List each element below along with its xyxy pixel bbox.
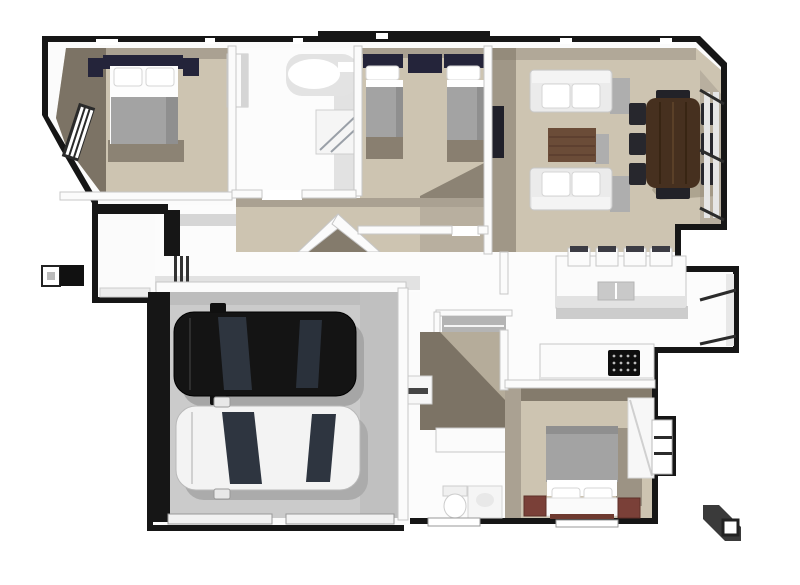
bed-shadow xyxy=(366,137,403,159)
carpet-shadow xyxy=(490,48,696,60)
duvet-shade xyxy=(477,87,484,140)
pillow xyxy=(366,66,399,80)
garage-side-wall xyxy=(148,292,170,522)
bathtub-shelf xyxy=(338,62,354,72)
car-body xyxy=(174,312,356,396)
basin xyxy=(476,493,494,507)
shared-nightstand xyxy=(408,54,442,73)
wall xyxy=(232,190,262,198)
porch-step xyxy=(100,288,150,297)
bed-base xyxy=(550,514,614,519)
window-sill xyxy=(556,520,618,527)
nightstand xyxy=(618,498,640,518)
wall xyxy=(60,192,232,200)
garage xyxy=(148,282,406,524)
rear-glass xyxy=(296,320,322,388)
dining-chair xyxy=(629,103,646,125)
pillow xyxy=(146,68,174,86)
sofa-cushion xyxy=(572,84,600,108)
wall xyxy=(484,46,492,254)
chimney-block xyxy=(703,505,741,541)
dining-chair xyxy=(629,163,646,185)
garage-door-opening xyxy=(286,514,394,524)
window-notch xyxy=(660,38,672,44)
bathroom-door-opening xyxy=(262,190,302,200)
door-threshold xyxy=(428,518,480,526)
pillow xyxy=(114,68,142,86)
sofa-cushion xyxy=(572,172,600,196)
table-shadow xyxy=(595,134,609,164)
stool-shadow xyxy=(570,246,588,252)
wall xyxy=(358,226,452,234)
wall xyxy=(354,46,362,196)
sheet-fold xyxy=(366,80,403,88)
bed-shadow xyxy=(447,140,484,162)
sofa-cushion xyxy=(542,172,570,196)
toilet-bowl xyxy=(444,494,466,518)
cabinet-side xyxy=(241,54,248,107)
double-bed-duvet xyxy=(546,426,618,482)
wall xyxy=(228,46,236,196)
bathtub-basin xyxy=(288,59,340,89)
stair-wall xyxy=(436,310,512,316)
stool-shadow xyxy=(598,246,616,252)
third-bedroom xyxy=(505,388,654,527)
sofa-shadow xyxy=(610,176,630,212)
floor-plan-svg xyxy=(0,0,800,585)
front-door-sidelights xyxy=(174,256,189,284)
sheet-fold xyxy=(447,80,484,88)
stool-shadow xyxy=(626,246,644,252)
coffee-table xyxy=(548,128,596,162)
floor-plan-render xyxy=(0,0,800,585)
wall xyxy=(478,226,488,234)
pillow xyxy=(447,66,480,80)
wall xyxy=(500,252,508,294)
window-frame xyxy=(654,436,672,439)
white-car xyxy=(176,397,368,500)
window-notch xyxy=(205,38,215,44)
window-notch xyxy=(293,38,303,44)
wall xyxy=(398,288,408,520)
entry-pillar xyxy=(164,210,180,256)
side-mirror xyxy=(210,303,226,313)
carpet-shadow xyxy=(420,198,486,252)
wall xyxy=(505,380,655,388)
windshield xyxy=(218,317,252,390)
duvet-shade xyxy=(396,87,403,137)
sofa-back xyxy=(532,197,610,209)
duvet-shade xyxy=(166,97,178,144)
stool-shadow xyxy=(652,246,670,252)
carpet-shadow xyxy=(505,388,521,518)
duvet-shade xyxy=(546,426,618,434)
wall-shadow xyxy=(172,214,236,226)
bathroom xyxy=(227,48,362,194)
bed-headboard xyxy=(546,498,618,516)
porch-wall xyxy=(98,204,168,214)
window-notch xyxy=(376,33,388,39)
washer-slot xyxy=(406,388,428,394)
dining-chair xyxy=(629,133,646,155)
top-wall-step xyxy=(318,31,490,39)
glazing xyxy=(713,92,719,218)
side-mirror xyxy=(214,397,230,407)
garage-door-opening xyxy=(168,514,272,524)
window-notch xyxy=(560,38,572,44)
nightstand xyxy=(524,496,546,516)
nightstand xyxy=(88,58,103,77)
side-window xyxy=(652,420,672,474)
living-room xyxy=(488,48,721,252)
sofa-back xyxy=(532,71,610,83)
hallway xyxy=(236,190,486,252)
letterbox-body xyxy=(60,265,84,286)
window-notch xyxy=(96,39,118,45)
nightstand xyxy=(183,58,199,76)
sofa-cushion xyxy=(542,84,570,108)
letterbox-slot xyxy=(47,272,55,280)
side-mirror xyxy=(214,489,230,499)
window-frame xyxy=(654,452,672,455)
sofa-shadow xyxy=(610,78,630,114)
black-car xyxy=(174,303,364,406)
wall xyxy=(302,190,356,198)
letterbox xyxy=(42,265,84,286)
bedroom-door-opening xyxy=(452,226,480,236)
chimney-cap xyxy=(723,520,738,535)
